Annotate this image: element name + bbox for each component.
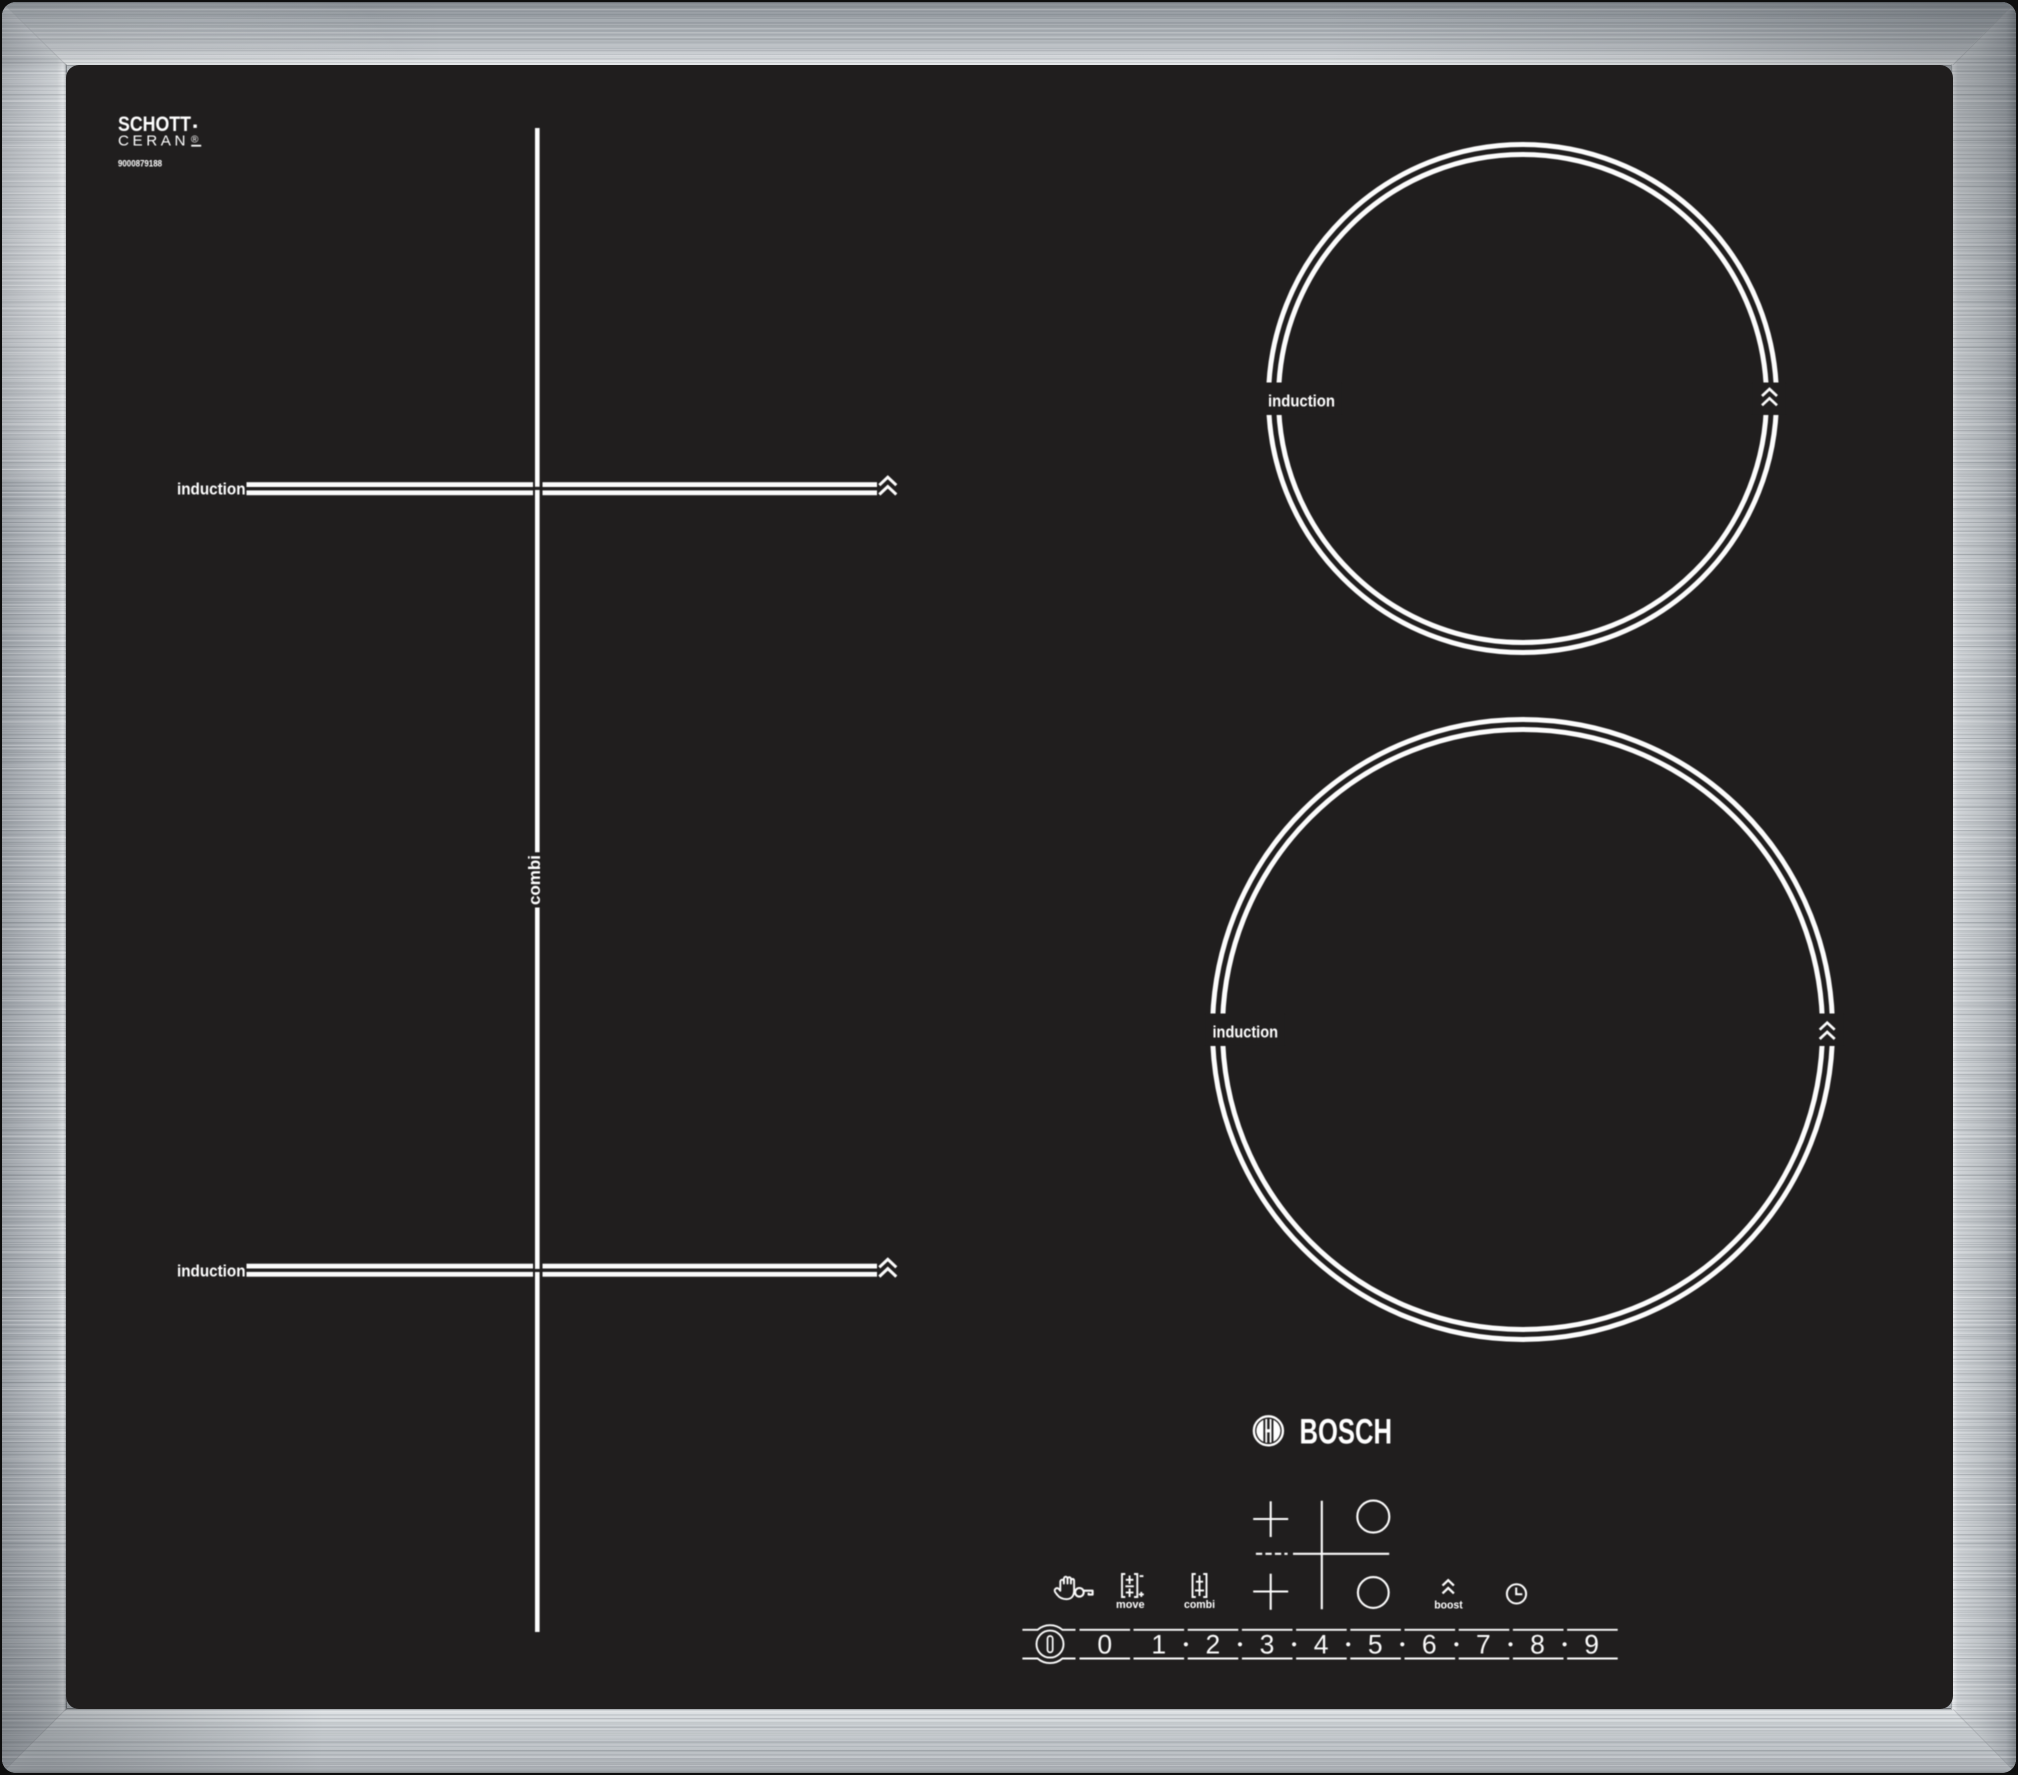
svg-text:9: 9 <box>1584 1630 1599 1660</box>
svg-text:induction: induction <box>1213 1023 1279 1042</box>
svg-text:induction: induction <box>177 479 246 498</box>
svg-text:move: move <box>1116 1599 1145 1611</box>
svg-text:0: 0 <box>1097 1630 1112 1660</box>
svg-text:6: 6 <box>1422 1630 1437 1660</box>
svg-text:3: 3 <box>1260 1630 1275 1660</box>
svg-text:9000879188: 9000879188 <box>118 159 162 169</box>
svg-text:boost: boost <box>1434 1599 1463 1611</box>
svg-text:combi: combi <box>525 855 544 905</box>
svg-text:CERAN: CERAN <box>118 133 189 150</box>
svg-text:5: 5 <box>1368 1630 1383 1660</box>
svg-text:®: ® <box>191 135 199 146</box>
svg-text:induction: induction <box>1268 391 1335 410</box>
svg-text:8: 8 <box>1530 1630 1545 1660</box>
svg-text:induction: induction <box>177 1261 246 1280</box>
svg-text:4: 4 <box>1314 1630 1329 1660</box>
svg-text:combi: combi <box>1184 1599 1215 1611</box>
svg-text:BOSCH: BOSCH <box>1300 1411 1393 1451</box>
svg-text:2: 2 <box>1206 1630 1221 1660</box>
svg-text:1: 1 <box>1151 1630 1166 1660</box>
svg-text:7: 7 <box>1476 1630 1491 1660</box>
